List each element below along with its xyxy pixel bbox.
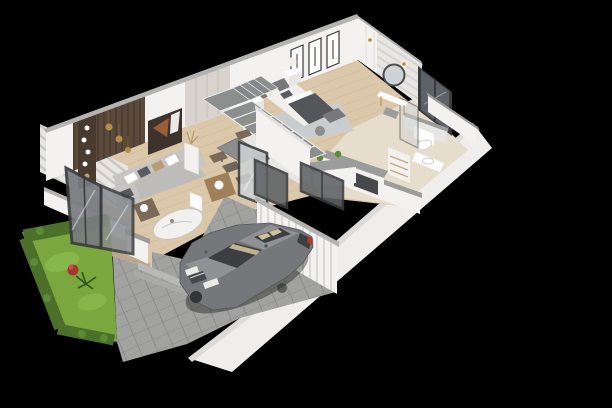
basin bbox=[423, 158, 434, 164]
hedge-blob bbox=[30, 258, 38, 266]
wall-sconce-1 bbox=[368, 38, 372, 42]
table-lamp-2 bbox=[288, 58, 296, 66]
wall-sconce-2 bbox=[402, 62, 406, 66]
table-decor bbox=[170, 219, 174, 223]
pendant-disc-3 bbox=[125, 147, 131, 153]
potted-plant-2 bbox=[335, 151, 341, 157]
pendant-disc-1 bbox=[106, 124, 113, 131]
marble-pedestal bbox=[184, 142, 199, 175]
patio-door-open bbox=[101, 186, 133, 254]
armchair-cushion bbox=[140, 204, 148, 212]
floorplan-render: Isometric 3D floor plan render of a two-… bbox=[0, 0, 612, 408]
lounge-chair-cushion bbox=[215, 181, 224, 190]
red-flower-highlight bbox=[69, 265, 74, 270]
hedge-blob bbox=[36, 227, 44, 235]
pouf bbox=[315, 126, 325, 136]
pendant-disc-2 bbox=[116, 136, 123, 143]
round-mirror bbox=[384, 65, 405, 86]
hedge-blob bbox=[43, 294, 51, 302]
hedge-blob bbox=[100, 334, 108, 342]
wheel-rear bbox=[277, 283, 287, 293]
render-stage: Isometric 3D floor plan render of a two-… bbox=[0, 0, 612, 408]
mirror-right bbox=[264, 244, 267, 247]
wheel-front bbox=[190, 291, 202, 303]
hedge-blob bbox=[78, 330, 86, 338]
mirror-left bbox=[204, 250, 207, 253]
